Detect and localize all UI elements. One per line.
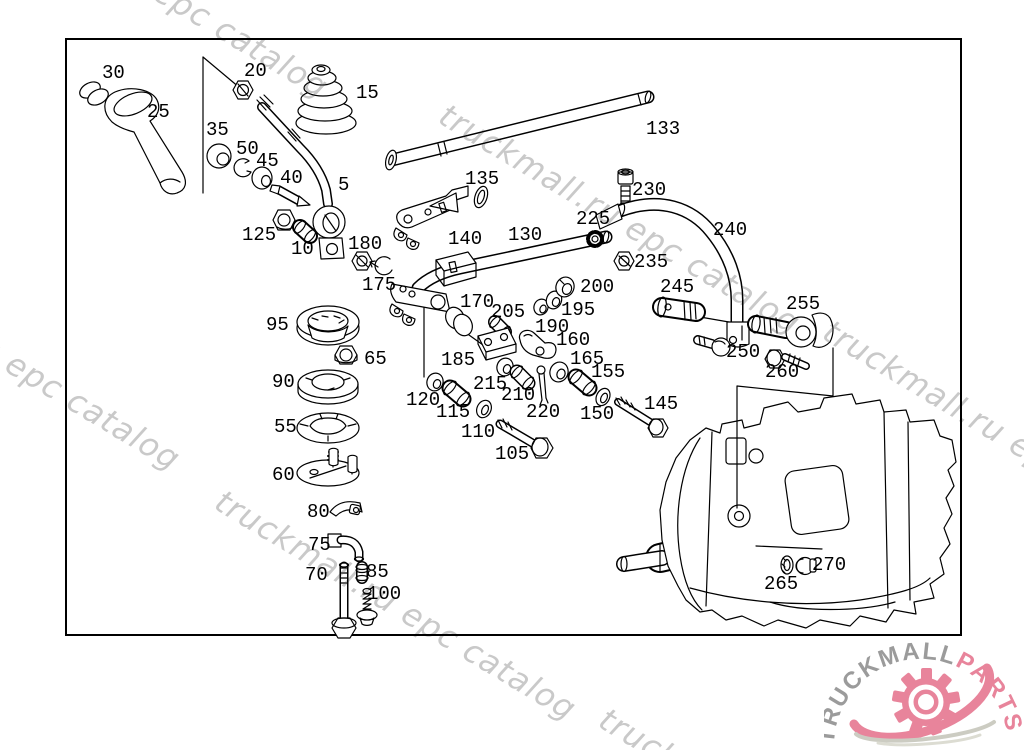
part-label-270[interactable]: 270 [812, 556, 846, 575]
part-label-215[interactable]: 215 [473, 375, 507, 394]
part-label-145[interactable]: 145 [644, 395, 678, 414]
part-label-175[interactable]: 175 [362, 276, 396, 295]
part-label-245[interactable]: 245 [660, 278, 694, 297]
part-label-65[interactable]: 65 [364, 350, 387, 369]
part-label-10[interactable]: 10 [291, 240, 314, 259]
part-label-225[interactable]: 225 [576, 210, 610, 229]
part-label-133[interactable]: 133 [646, 120, 680, 139]
part-label-40[interactable]: 40 [280, 169, 303, 188]
part-label-240[interactable]: 240 [713, 221, 747, 240]
part-230-bolt-graphic [618, 169, 633, 203]
part-label-235[interactable]: 235 [634, 253, 668, 272]
part-label-100[interactable]: 100 [367, 585, 401, 604]
part-label-15[interactable]: 15 [356, 84, 379, 103]
part-label-265[interactable]: 265 [764, 575, 798, 594]
part-label-230[interactable]: 230 [632, 181, 666, 200]
part-220-cotter-pin-graphic [537, 366, 548, 405]
part-label-25[interactable]: 25 [147, 103, 170, 122]
part-70-bolt-graphic [332, 563, 356, 638]
part-75-elbow-graphic [328, 534, 364, 561]
part-label-130[interactable]: 130 [508, 226, 542, 245]
part-label-50[interactable]: 50 [236, 140, 259, 159]
part-label-80[interactable]: 80 [307, 503, 330, 522]
part-110-oring-graphic [474, 398, 494, 420]
part-65-nut-graphic [335, 346, 357, 364]
diagram-canvas: 5101520253035404550556065707580859095100… [0, 0, 1024, 750]
part-235-nut-graphic [614, 252, 634, 270]
part-label-255[interactable]: 255 [786, 295, 820, 314]
part-20-nut-graphic [233, 81, 253, 99]
part-label-5[interactable]: 5 [338, 176, 349, 195]
part-185-link-graphic [478, 328, 516, 360]
part-50-snap-ring-graphic [234, 159, 251, 177]
part-55-plate-graphic [297, 413, 359, 443]
part-label-35[interactable]: 35 [206, 121, 229, 140]
part-label-55[interactable]: 55 [274, 418, 297, 437]
part-label-30[interactable]: 30 [102, 64, 125, 83]
part-label-125[interactable]: 125 [242, 226, 276, 245]
part-label-75[interactable]: 75 [308, 536, 331, 555]
part-label-205[interactable]: 205 [491, 303, 525, 322]
part-35-grommet-graphic [207, 144, 231, 168]
part-125-nut-graphic [273, 210, 295, 230]
part-label-165[interactable]: 165 [570, 350, 604, 369]
part-90-plate-graphic [298, 370, 358, 404]
part-255-joint-graphic [751, 313, 833, 347]
part-label-95[interactable]: 95 [266, 316, 289, 335]
part-80-clamp-graphic [330, 502, 362, 516]
truckmall-parts-logo: TRUCKMALLPARTS [824, 640, 1024, 750]
part-label-170[interactable]: 170 [460, 293, 494, 312]
part-label-85[interactable]: 85 [366, 563, 389, 582]
part-25-shift-lever-graphic [105, 87, 186, 194]
part-label-180[interactable]: 180 [348, 235, 382, 254]
logo-text-parts: PARTS [952, 647, 1024, 735]
part-label-105[interactable]: 105 [495, 445, 529, 464]
part-label-115[interactable]: 115 [436, 403, 470, 422]
part-60-plate-graphic [297, 448, 359, 486]
part-165-washer-graphic [547, 360, 571, 385]
part-label-135[interactable]: 135 [465, 170, 499, 189]
part-label-140[interactable]: 140 [448, 230, 482, 249]
part-label-20[interactable]: 20 [244, 62, 267, 81]
part-label-200[interactable]: 200 [580, 278, 614, 297]
part-label-90[interactable]: 90 [272, 373, 295, 392]
part-95-ring-graphic [297, 306, 359, 345]
part-label-60[interactable]: 60 [272, 466, 295, 485]
part-label-110[interactable]: 110 [461, 423, 495, 442]
part-label-120[interactable]: 120 [406, 391, 440, 410]
part-label-70[interactable]: 70 [305, 566, 328, 585]
part-133-rod-graphic [384, 91, 652, 171]
part-245-sleeve-graphic [657, 297, 696, 320]
part-label-250[interactable]: 250 [726, 343, 760, 362]
part-label-220[interactable]: 220 [526, 403, 560, 422]
part-175-snap-ring-graphic [370, 257, 392, 275]
part-15-boot-graphic [296, 65, 356, 134]
part-label-195[interactable]: 195 [561, 301, 595, 320]
part-label-260[interactable]: 260 [765, 363, 799, 382]
part-265-washer-graphic [781, 556, 793, 574]
part-225-lock-washer-graphic [587, 231, 603, 247]
part-label-150[interactable]: 150 [580, 405, 614, 424]
part-label-45[interactable]: 45 [256, 152, 279, 171]
part-label-185[interactable]: 185 [441, 351, 475, 370]
